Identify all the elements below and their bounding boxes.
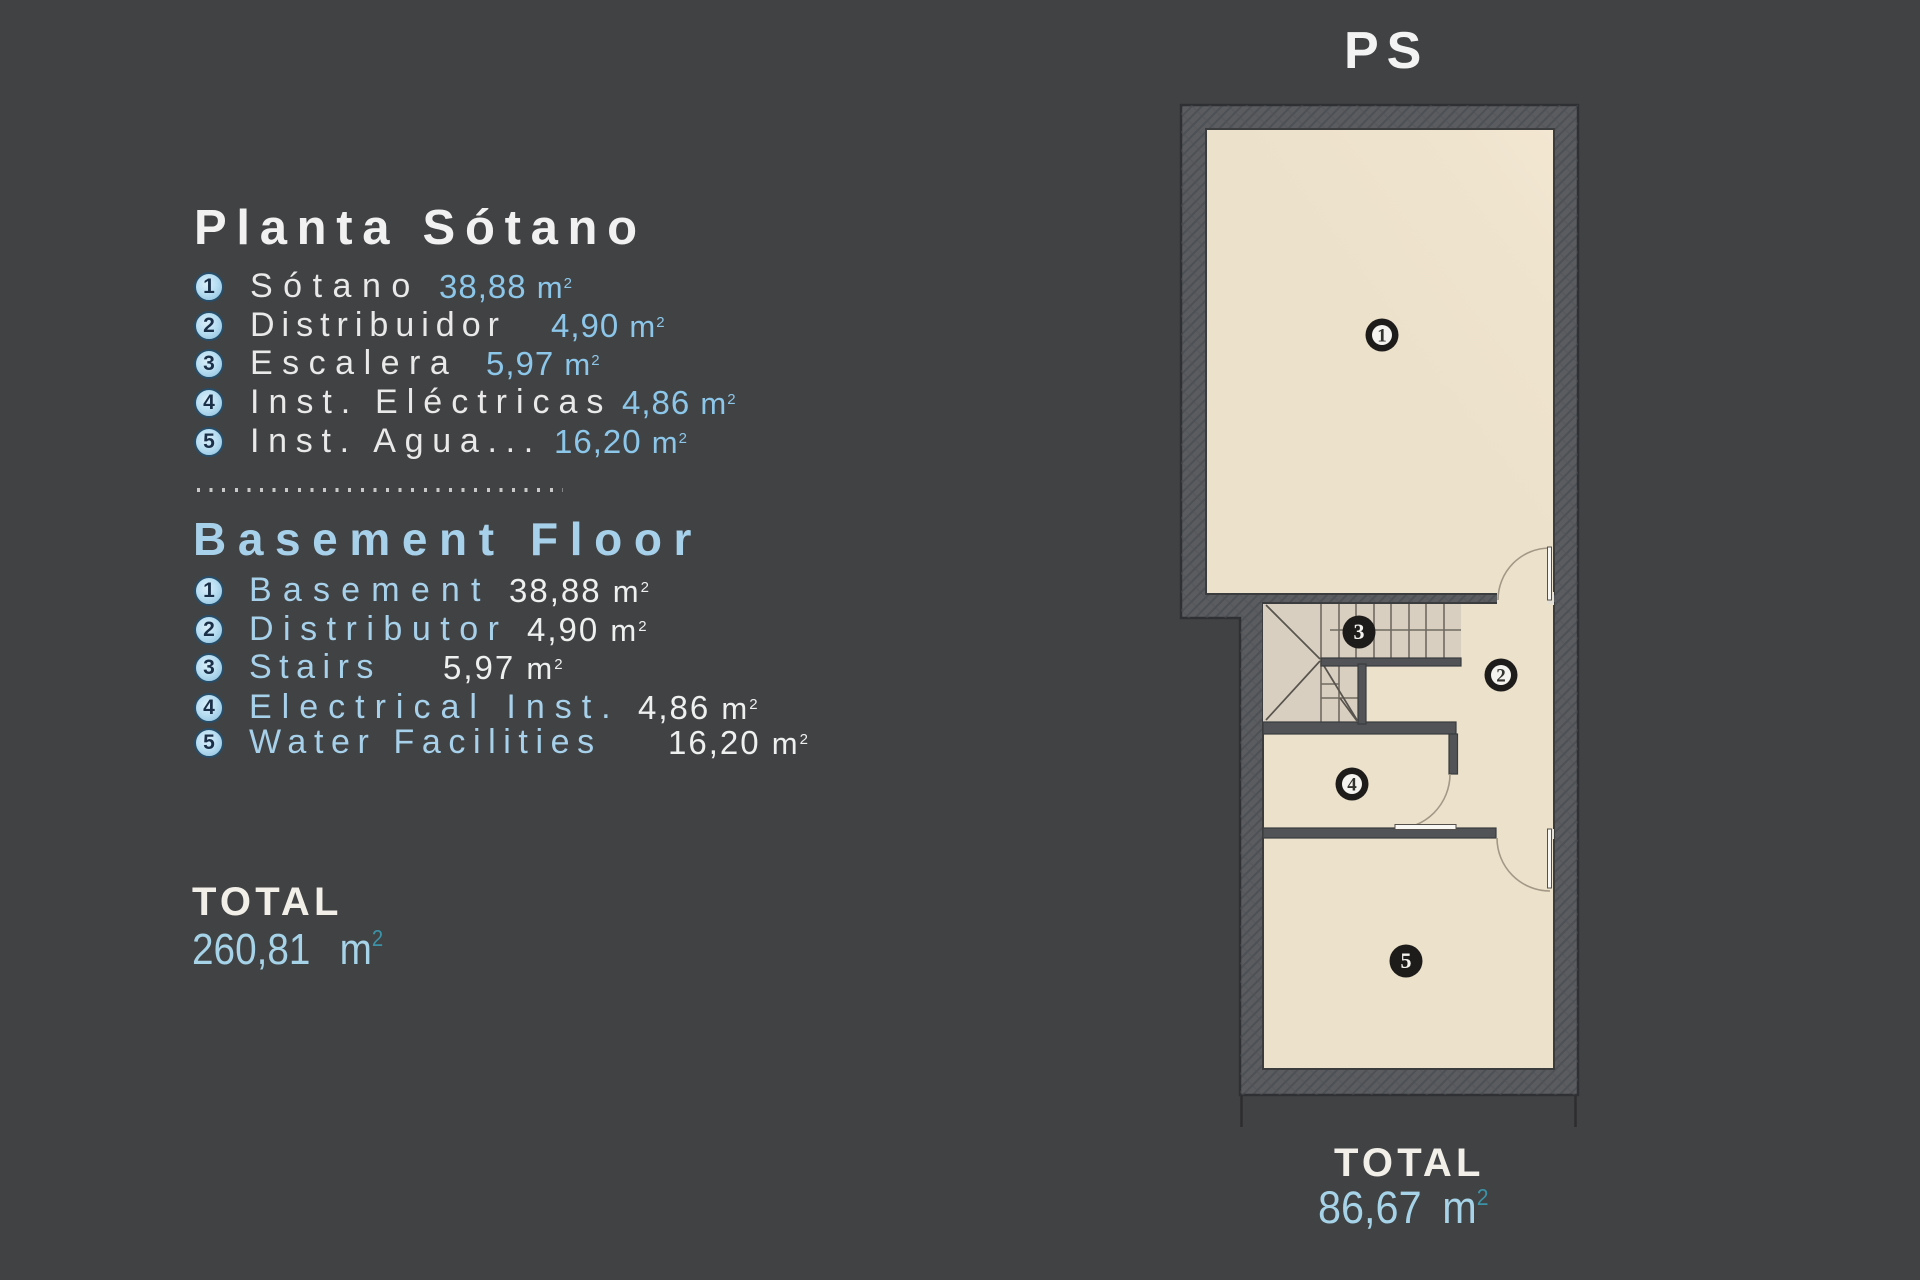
svg-text:3: 3	[1354, 619, 1365, 644]
svg-text:1: 1	[1377, 326, 1387, 347]
svg-text:5: 5	[1401, 948, 1412, 973]
svg-text:2: 2	[1496, 666, 1506, 687]
svg-text:4: 4	[1347, 775, 1357, 796]
